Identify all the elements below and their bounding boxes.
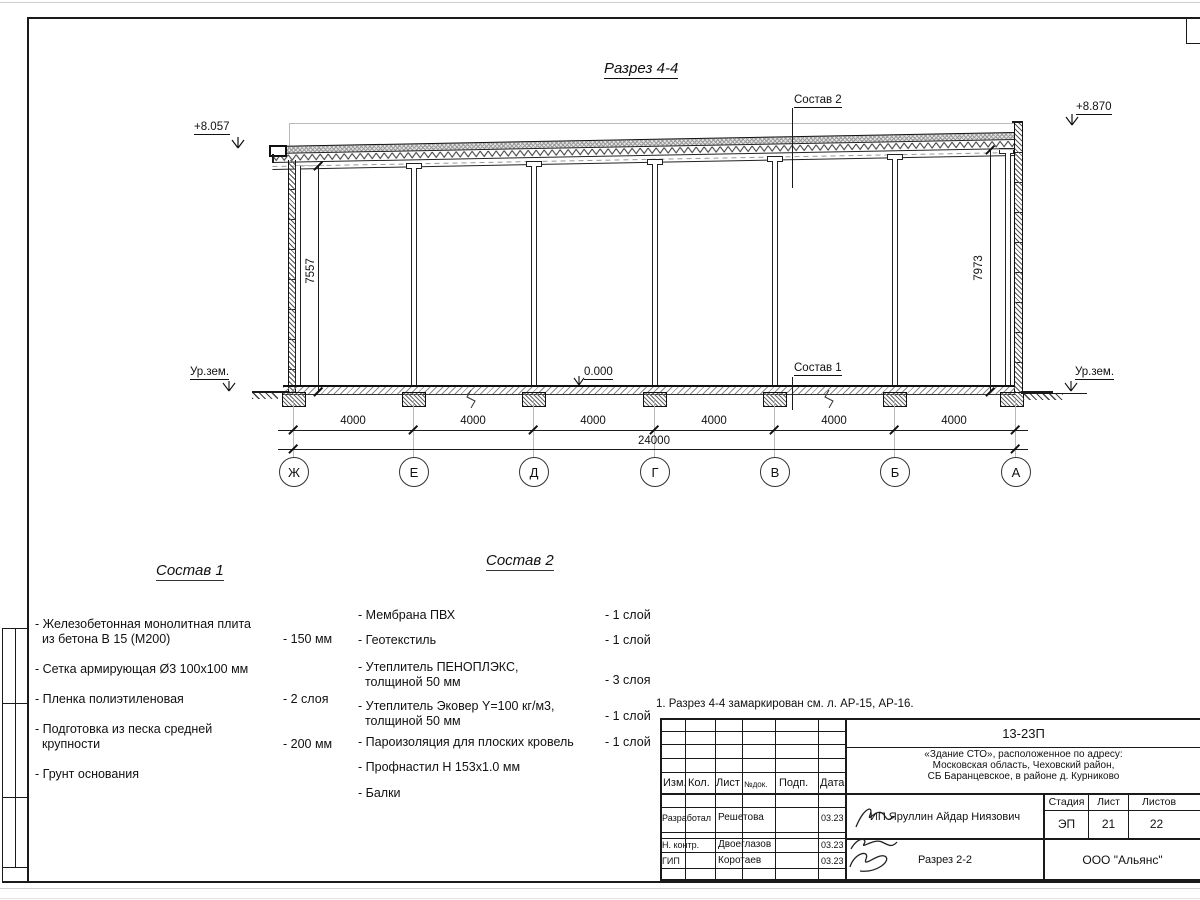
elevation-right: +8.870 bbox=[1076, 101, 1112, 115]
axis-bubble: Б bbox=[880, 457, 910, 487]
column-axis-zh bbox=[295, 166, 301, 387]
comp1-item: - Грунт основания bbox=[35, 767, 139, 782]
roof-package bbox=[272, 132, 1015, 170]
bay-dim: 4000 bbox=[804, 415, 864, 427]
elevation-left: +8.057 bbox=[194, 121, 230, 135]
tb-sheets-value: 22 bbox=[1129, 817, 1184, 831]
axis-label: Е bbox=[410, 465, 419, 480]
comp1-value: - 2 слоя bbox=[283, 692, 328, 706]
tb-col-izm: Изм. bbox=[663, 777, 687, 789]
tb-row-line bbox=[660, 868, 845, 869]
axis-label: А bbox=[1012, 465, 1021, 480]
leader-sostav-1: Состав 1 bbox=[794, 362, 842, 376]
tb-role-2: Н. контр. bbox=[662, 840, 699, 850]
tb-role-3: ГИП bbox=[662, 856, 680, 866]
comp2-item: - Профнастил Н 153х1.0 мм bbox=[358, 760, 520, 775]
ground-hatch-right bbox=[1023, 394, 1063, 400]
comp2-item: - Утеплитель Эковер Y=100 кг/м3, толщино… bbox=[358, 699, 554, 729]
tb-name-2: Двоеглазов bbox=[718, 839, 771, 850]
wall-right-parapet bbox=[1014, 123, 1023, 392]
bay-dim: 4000 bbox=[323, 415, 383, 427]
side-box-line-3 bbox=[2, 797, 27, 798]
tb-col-ndok: №док. bbox=[744, 780, 767, 789]
tb-row-line bbox=[660, 758, 845, 759]
dim-right-height: 7973 bbox=[973, 250, 985, 286]
tb-sheet-label: Лист bbox=[1089, 796, 1128, 808]
axis-bubble: Д bbox=[519, 457, 549, 487]
foundation-pad bbox=[763, 392, 787, 407]
tb-col-line bbox=[775, 718, 776, 881]
tb-project-line-3: СБ Баранцевское, в районе д. Курниково bbox=[847, 771, 1200, 782]
break-symbol bbox=[822, 390, 836, 408]
foundation-pad bbox=[883, 392, 907, 407]
tb-row-line bbox=[660, 731, 845, 732]
tb-project-line-1: «Здание СТО», расположенное по адресу: bbox=[847, 749, 1200, 760]
elevation-mark-icon bbox=[221, 381, 237, 394]
bay-dim: 4000 bbox=[924, 415, 984, 427]
elevation-floor: 0.000 bbox=[584, 366, 613, 380]
tb-row-line bbox=[660, 832, 845, 833]
tb-date-3: 03.23 bbox=[821, 856, 844, 866]
axis-bubble: Г bbox=[640, 457, 670, 487]
comp2-item: - Геотекстиль bbox=[358, 633, 436, 648]
tb-name-3: Коротаев bbox=[718, 855, 761, 866]
tb-date-2: 03.23 bbox=[821, 840, 844, 850]
corner-box-left bbox=[1186, 17, 1187, 44]
axis-label: Г bbox=[651, 465, 658, 480]
foundation-pad bbox=[1000, 392, 1024, 407]
axis-label: Б bbox=[891, 465, 900, 480]
foundation-pad bbox=[402, 392, 426, 407]
break-symbol bbox=[464, 390, 478, 408]
elevation-mark-icon bbox=[1064, 114, 1080, 128]
comp1-item: - Железобетонная монолитная плита из бет… bbox=[35, 617, 251, 647]
comp1-value: - 200 мм bbox=[283, 737, 332, 751]
comp2-value: - 1 слой bbox=[605, 709, 651, 723]
leader-sostav-2: Состав 2 bbox=[794, 94, 842, 108]
comp2-item: - Мембрана ПВХ bbox=[358, 608, 455, 623]
comp2-title: Состав 2 bbox=[486, 552, 554, 571]
ground-level-left: Ур.зем. bbox=[190, 366, 229, 380]
comp1-item: - Подготовка из песка средней крупности bbox=[35, 722, 212, 752]
tb-col-kol: Кол. bbox=[688, 777, 710, 789]
tb-row-line bbox=[660, 744, 845, 745]
titleblock-border bbox=[660, 879, 1200, 881]
ground-level-right: Ур.зем. bbox=[1075, 366, 1114, 380]
corner-box-bottom bbox=[1186, 43, 1200, 44]
side-box-line-2 bbox=[2, 703, 27, 704]
axis-bubble: Е bbox=[399, 457, 429, 487]
axis-bubble: А bbox=[1001, 457, 1031, 487]
frame-top bbox=[27, 17, 1200, 19]
ext-line bbox=[992, 149, 1014, 150]
roof-edge-fascia bbox=[272, 154, 274, 163]
tb-role-1: Разработал bbox=[662, 813, 711, 823]
paper-edge-top bbox=[0, 2, 1200, 3]
tb-sheet-title: Разрез 2-2 bbox=[847, 840, 1043, 879]
column-axis-v bbox=[772, 161, 778, 387]
column-axis-g bbox=[652, 164, 658, 387]
tb-col-line bbox=[818, 718, 819, 881]
tb-stage-label: Стадия bbox=[1045, 796, 1088, 808]
frame-bottom bbox=[2, 881, 1200, 883]
axis-label: В bbox=[771, 465, 780, 480]
total-dim: 24000 bbox=[624, 435, 684, 447]
axis-bubble: В bbox=[760, 457, 790, 487]
elevation-mark-icon bbox=[1063, 381, 1079, 394]
tb-project-line-2: Московская область, Чеховский район, bbox=[847, 760, 1200, 771]
ext-line bbox=[296, 165, 324, 166]
dim-line-total bbox=[278, 449, 1028, 450]
tb-stage-value: ЭП bbox=[1045, 817, 1088, 831]
ground-hatch-left bbox=[252, 393, 278, 399]
dim-left-height: 7557 bbox=[305, 253, 317, 289]
comp2-value: - 1 слой bbox=[605, 608, 651, 622]
tb-doc-number: 13-23П bbox=[847, 720, 1200, 747]
side-box-mid bbox=[15, 628, 16, 867]
paper-edge-bottom bbox=[0, 888, 1200, 889]
foundation-pad bbox=[522, 392, 546, 407]
column-axis-a bbox=[1005, 153, 1011, 387]
column-axis-b bbox=[892, 159, 898, 387]
comp1-value: - 150 мм bbox=[283, 632, 332, 646]
comp2-value: - 1 слой bbox=[605, 633, 651, 647]
comp2-value: - 3 слоя bbox=[605, 673, 650, 687]
side-box-line-1 bbox=[2, 628, 27, 629]
side-box-line-4 bbox=[2, 867, 27, 868]
foundation-pad bbox=[643, 392, 667, 407]
paper-edge-bottom-2 bbox=[0, 898, 1200, 899]
tb-col-podp: Подп. bbox=[779, 777, 808, 789]
comp2-item: - Пароизоляция для плоских кровель bbox=[358, 735, 574, 750]
side-box-outer bbox=[2, 628, 3, 881]
bay-dim: 4000 bbox=[443, 415, 503, 427]
tb-col-data: Дата bbox=[820, 777, 844, 789]
tb-client: ИП Яруллин Айдар Ниязович bbox=[847, 795, 1043, 838]
section-title: Разрез 4-4 bbox=[604, 60, 678, 79]
bay-dim: 4000 bbox=[684, 415, 744, 427]
tb-row-line bbox=[845, 747, 1200, 748]
foundation-pad bbox=[282, 392, 306, 407]
tb-row-line bbox=[660, 772, 845, 773]
frame-left bbox=[27, 17, 29, 881]
column-axis-d bbox=[531, 166, 537, 387]
tb-col-list: Лист bbox=[716, 777, 740, 789]
tb-col-line bbox=[685, 718, 686, 881]
dim-line-right-height bbox=[990, 150, 991, 392]
drawing-note: 1. Разрез 4-4 замаркирован см. л. АР-15,… bbox=[656, 698, 914, 710]
tb-name-1: Решетова bbox=[718, 812, 764, 823]
tb-row-line bbox=[660, 807, 845, 808]
axis-label: Ж bbox=[288, 465, 300, 480]
tb-sheets-label: Листов bbox=[1129, 796, 1189, 808]
comp2-value: - 1 слой bbox=[605, 735, 651, 749]
tb-sheet-value: 21 bbox=[1089, 817, 1128, 831]
tb-company: ООО "Альянс" bbox=[1045, 840, 1200, 879]
elevation-mark-icon bbox=[230, 137, 246, 151]
drawing-sheet: { "drawing": { "section_title": "Разрез … bbox=[0, 0, 1200, 900]
comp2-item: - Утеплитель ПЕНОПЛЭКС, толщиной 50 мм bbox=[358, 660, 518, 690]
bay-dim: 4000 bbox=[563, 415, 623, 427]
axis-label: Д bbox=[530, 465, 539, 480]
parapet-cap bbox=[1012, 121, 1023, 123]
construction-line-left bbox=[289, 123, 290, 147]
comp1-item: - Пленка полиэтиленовая bbox=[35, 692, 184, 707]
leader-line-sostav-1 bbox=[792, 377, 793, 410]
comp1-title: Состав 1 bbox=[156, 562, 224, 581]
leader-line-sostav-2 bbox=[792, 108, 793, 188]
construction-line-top bbox=[289, 123, 1015, 124]
dim-line-left-height bbox=[318, 166, 319, 392]
tb-row-line bbox=[660, 852, 845, 853]
comp1-item: - Сетка армирующая Ø3 100х100 мм bbox=[35, 662, 248, 677]
axis-bubble: Ж bbox=[279, 457, 309, 487]
column-axis-e bbox=[411, 168, 417, 387]
tb-row-line bbox=[1043, 810, 1200, 811]
tb-date-1: 03.23 bbox=[821, 813, 844, 823]
elevation-mark-icon bbox=[571, 376, 587, 388]
tb-col-line bbox=[715, 718, 716, 881]
comp2-item: - Балки bbox=[358, 786, 401, 801]
